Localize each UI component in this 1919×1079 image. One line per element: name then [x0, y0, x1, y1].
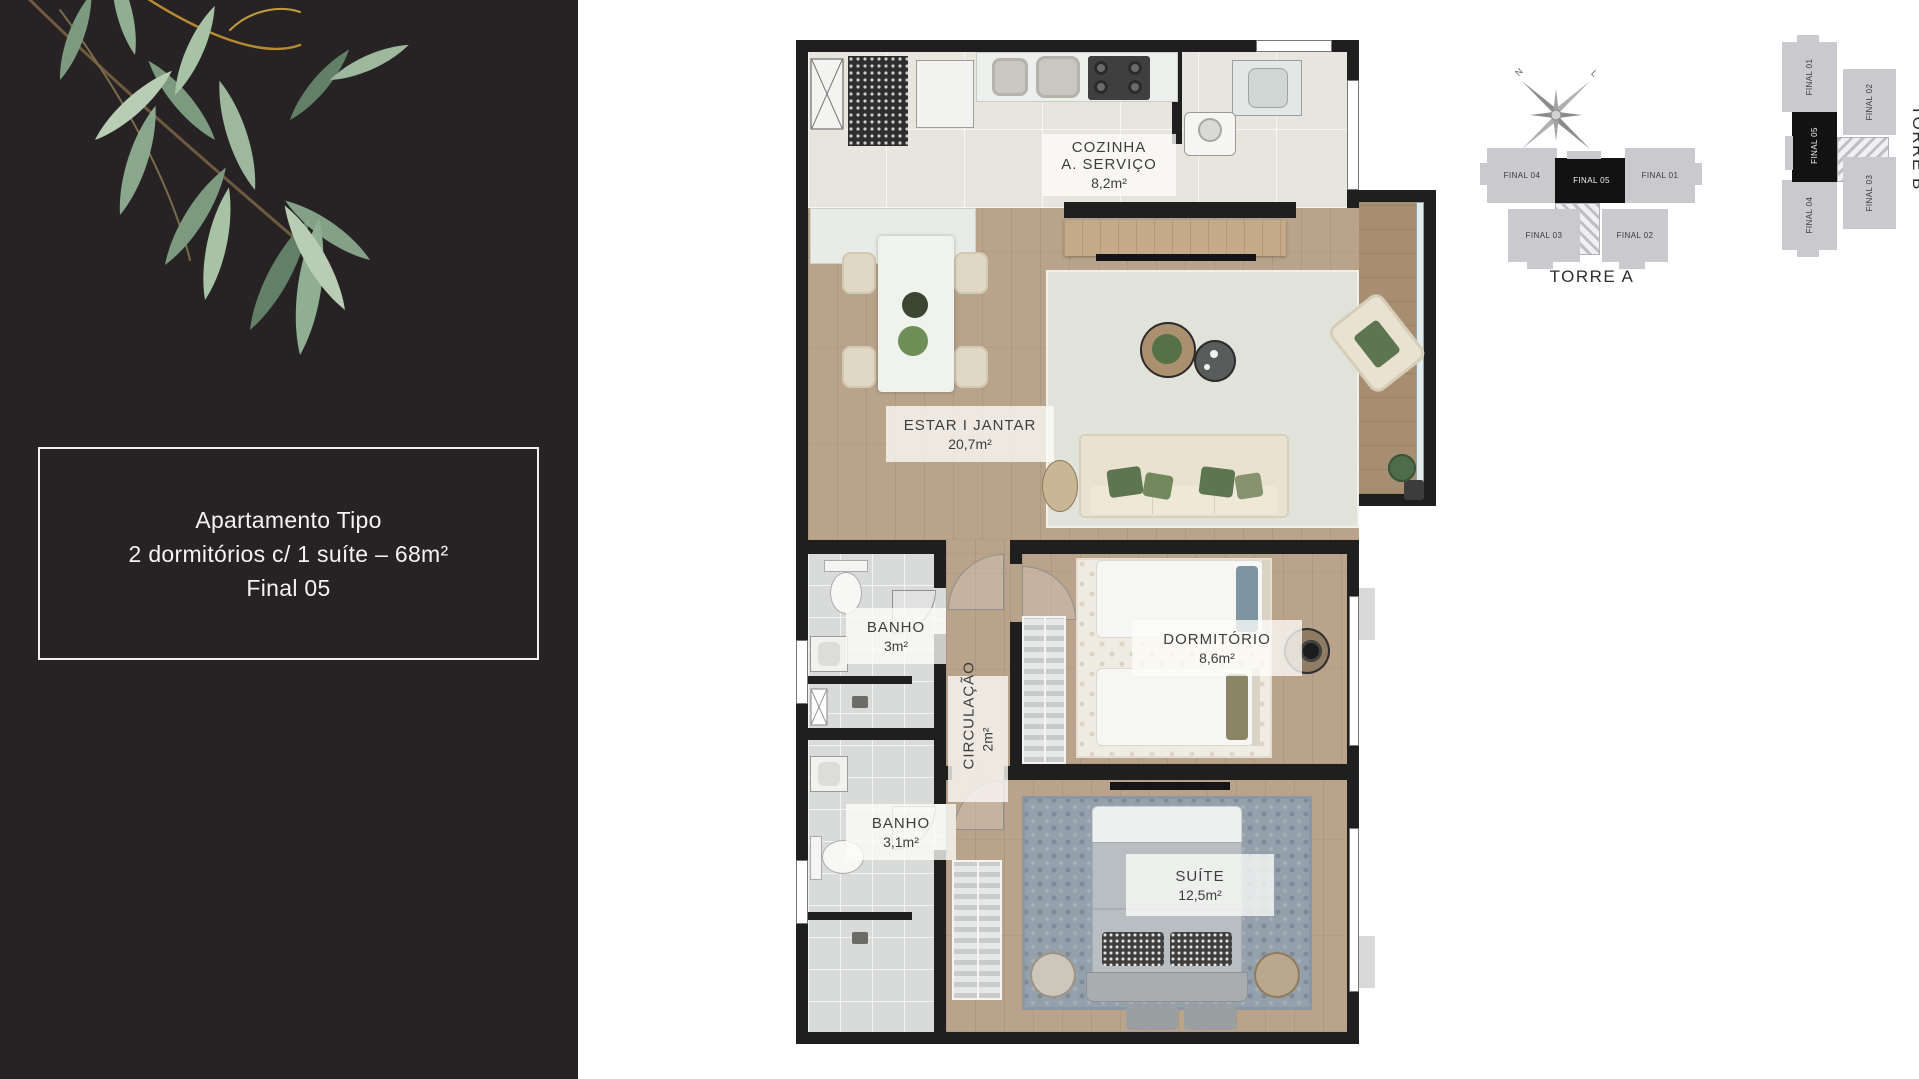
- shower-1-glass-icon: [810, 688, 828, 726]
- suite-tv: [1110, 782, 1230, 790]
- torre-a-label: TORRE A: [1487, 267, 1697, 287]
- apartment-unit: Final 05: [246, 571, 330, 605]
- coffee-table-cup-2: [1204, 364, 1210, 370]
- banho1-shower-wall: [808, 676, 912, 684]
- table-plant-green: [898, 326, 928, 356]
- vent-grille: [848, 56, 908, 146]
- label-banho1: BANHO 3m²: [846, 608, 946, 664]
- kitchen-window: [1256, 40, 1332, 52]
- table-plant-dark: [902, 292, 928, 318]
- label-estar-jantar: ESTAR I JANTAR 20,7m²: [886, 406, 1054, 462]
- suite-pillow-2: [1170, 932, 1232, 966]
- suite-pillow-1: [1102, 932, 1164, 966]
- torre-b-unit-final01: FINAL 01: [1782, 42, 1837, 112]
- torre-b-tab-left: [1797, 249, 1819, 257]
- floor-plan: COZINHA A. SERVIÇO 8,2m² ESTAR I JANTAR …: [796, 40, 1436, 1044]
- suite-bed-sheet: [1092, 806, 1242, 846]
- keyplan-torre-a: FINAL 04 FINAL 05 FINAL 01 FINAL 03 FINA…: [1487, 145, 1697, 295]
- bed-2-headboard: [1252, 668, 1260, 746]
- washer-drum: [1198, 118, 1222, 142]
- kitchen-sink-2: [1036, 56, 1080, 98]
- kitchen-sink-1: [992, 58, 1028, 96]
- eucalyptus-branch-illustration: [0, 0, 500, 430]
- suite-nightstand-right: [1254, 952, 1300, 998]
- compass-l: L: [1589, 68, 1600, 79]
- burner-4: [1128, 80, 1142, 94]
- label-banho2: BANHO 3,1m²: [846, 804, 956, 860]
- bedroom-window: [1349, 596, 1359, 746]
- suite-window-fin: [1359, 936, 1375, 988]
- tv-wall: [1064, 202, 1296, 218]
- label-suite: SUÍTE 12,5m²: [1126, 854, 1274, 916]
- side-table-oval: [1042, 460, 1078, 512]
- keyplan-torre-b: FINAL 04 FINAL 05 FINAL 01 FINAL 03 FINA…: [1779, 40, 1899, 250]
- torre-a-unit-final03: FINAL 03: [1508, 209, 1580, 262]
- sofa-pillow-4: [1234, 472, 1263, 500]
- suite-nightstand-left: [1030, 952, 1076, 998]
- bedroom-window-fin: [1359, 588, 1375, 640]
- bed-2-pillow: [1226, 674, 1248, 740]
- sofa-pillow-3: [1198, 466, 1235, 498]
- bedroom-wardrobe: [1022, 616, 1066, 764]
- tv-console: [1064, 220, 1286, 256]
- torre-b-unit-final05-tab: [1785, 136, 1793, 170]
- sidebar: Apartamento Tipo 2 dormitórios c/ 1 suít…: [0, 0, 578, 1079]
- coffee-table-dark: [1194, 340, 1236, 382]
- banho2-shower-wall: [808, 912, 912, 920]
- torre-a-unit-final04: FINAL 04: [1487, 148, 1557, 203]
- burner-1: [1094, 61, 1108, 75]
- torre-a-unit-final05: FINAL 05: [1555, 158, 1628, 203]
- burner-2: [1128, 61, 1142, 75]
- sofa-pillow-1: [1106, 466, 1144, 498]
- bathroom-divider-wall: [808, 728, 934, 740]
- service-window: [1347, 80, 1359, 190]
- suite-wardrobe: [952, 860, 1002, 1000]
- torre-b-unit-final02: FINAL 02: [1843, 69, 1896, 135]
- banho2-window: [796, 860, 808, 924]
- coffee-table-cup-1: [1210, 350, 1218, 358]
- torre-a-unit-final01: FINAL 01: [1625, 148, 1695, 203]
- bedroom-door-gap: [1010, 564, 1022, 622]
- floor-lamp: [1388, 454, 1416, 482]
- apartment-spec: 2 dormitórios c/ 1 suíte – 68m²: [129, 537, 449, 571]
- label-cozinha: COZINHA A. SERVIÇO 8,2m²: [1042, 134, 1176, 196]
- shower-1-head: [852, 696, 868, 708]
- balcony-corner-post: [1404, 480, 1424, 500]
- compass-n: N: [1513, 66, 1525, 78]
- vanity-2-bowl: [818, 762, 840, 786]
- nightstand-record: [1300, 640, 1322, 662]
- apartment-type-title: Apartamento Tipo: [195, 503, 381, 537]
- torre-b-unit-final03: FINAL 03: [1843, 157, 1896, 229]
- coffee-table-plant: [1152, 334, 1182, 364]
- toilet-1-tank: [824, 560, 868, 572]
- torre-b-label: TORRE B: [1908, 88, 1919, 208]
- torre-b-unit-final05: FINAL 05: [1792, 109, 1837, 182]
- torre-a-tab-right: [1694, 163, 1702, 185]
- label-dormitorio: DORMITÓRIO 8,6m²: [1132, 620, 1302, 676]
- dining-chair-4: [954, 346, 988, 388]
- torre-b-unit-final04: FINAL 04: [1782, 180, 1837, 250]
- sofa-pillow-2: [1142, 472, 1174, 500]
- dining-chair-3: [954, 252, 988, 294]
- burner-3: [1094, 80, 1108, 94]
- dining-chair-2: [842, 346, 876, 388]
- vanity-1-bowl: [818, 642, 840, 666]
- toilet-2-tank: [810, 836, 822, 880]
- kitchen-cabinet: [916, 60, 974, 128]
- suite-bench-1: [1126, 1004, 1178, 1030]
- shower-2-head: [852, 932, 868, 944]
- banho1-window: [796, 640, 808, 704]
- eucalyptus-leaves: [53, 0, 412, 357]
- elevator-shaft-icon: [810, 58, 844, 130]
- suite-bench-2: [1184, 1004, 1236, 1030]
- dining-chair-1: [842, 252, 876, 294]
- apartment-info-box: Apartamento Tipo 2 dormitórios c/ 1 suít…: [38, 447, 539, 660]
- suite-headboard: [1086, 972, 1248, 1002]
- torre-a-unit-final05-tab: [1567, 151, 1601, 159]
- suite-window: [1349, 828, 1359, 992]
- tv-screen: [1096, 254, 1256, 261]
- laundry-sink-bowl: [1248, 68, 1288, 108]
- corridor-entry-gap: [946, 540, 1010, 554]
- torre-a-unit-final02: FINAL 02: [1602, 209, 1668, 262]
- label-circulacao: CIRCULAÇÃO 2m²: [948, 676, 1008, 802]
